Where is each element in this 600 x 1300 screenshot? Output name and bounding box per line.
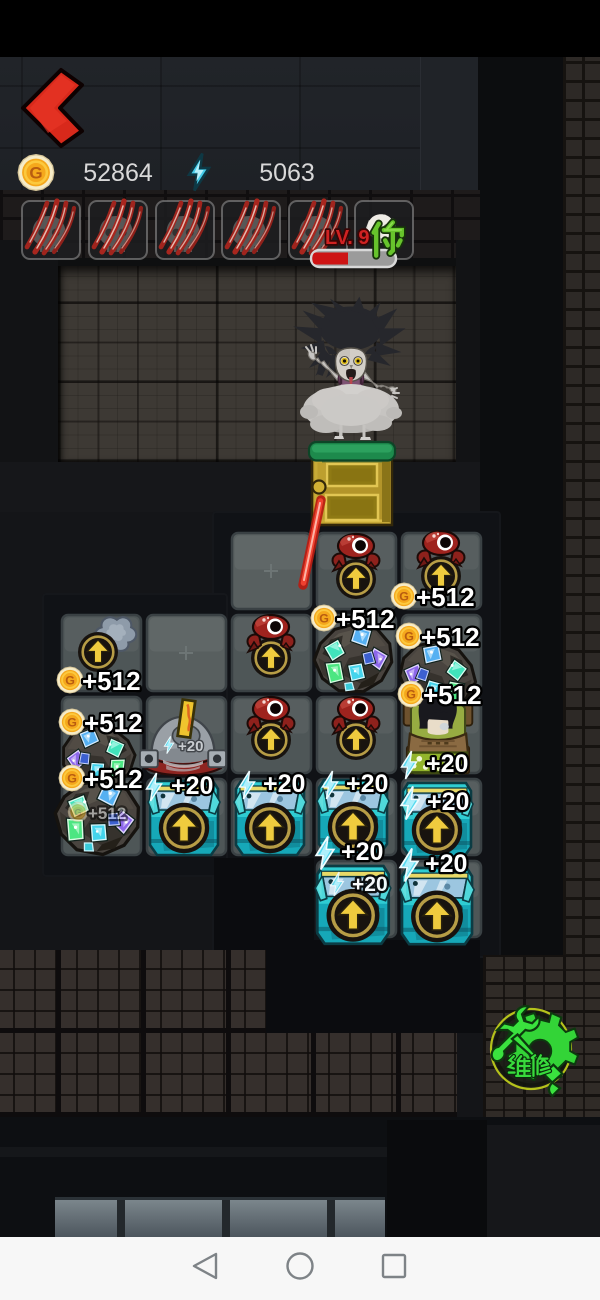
svg-text:+20: +20 <box>425 850 467 878</box>
svg-text:+20: +20 <box>346 770 388 798</box>
svg-text:+512: +512 <box>88 804 126 823</box>
svg-text:+512: +512 <box>336 604 395 634</box>
svg-text:+512: +512 <box>416 582 475 612</box>
svg-text:LV. 9: LV. 9 <box>325 227 369 249</box>
svg-text:+20: +20 <box>426 750 468 778</box>
svg-text:+512: +512 <box>423 680 482 710</box>
svg-text:+20: +20 <box>171 772 213 800</box>
svg-text:+512: +512 <box>84 708 143 738</box>
svg-text:+512: +512 <box>421 622 480 652</box>
svg-text:+20: +20 <box>352 873 388 896</box>
svg-text:+512: +512 <box>84 764 143 794</box>
svg-text:+20: +20 <box>263 770 305 798</box>
svg-text:+20: +20 <box>341 838 383 866</box>
svg-text:+512: +512 <box>82 666 141 696</box>
svg-text:5063: 5063 <box>259 159 315 187</box>
svg-text:52864: 52864 <box>83 159 153 187</box>
svg-text:+20: +20 <box>178 738 203 755</box>
svg-text:+20: +20 <box>427 788 469 816</box>
